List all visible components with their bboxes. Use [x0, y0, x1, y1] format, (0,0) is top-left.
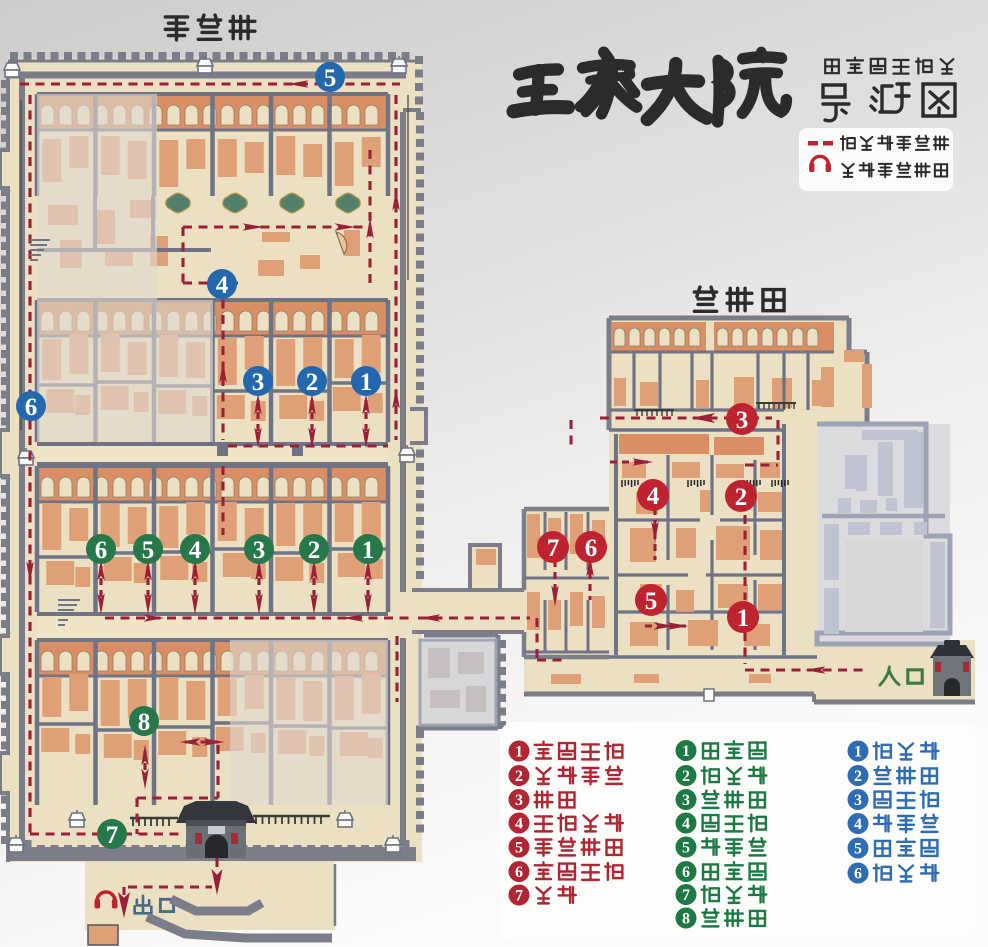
svg-text:6: 6: [95, 537, 108, 564]
svg-text:7: 7: [515, 888, 523, 905]
svg-text:1: 1: [360, 369, 373, 396]
svg-text:1: 1: [682, 743, 690, 760]
svg-text:8: 8: [682, 911, 690, 928]
svg-text:7: 7: [106, 822, 119, 849]
svg-text:3: 3: [252, 369, 265, 396]
svg-text:4: 4: [647, 483, 660, 510]
svg-text:5: 5: [142, 537, 155, 564]
svg-text:5: 5: [515, 840, 523, 857]
svg-text:5: 5: [682, 840, 690, 857]
svg-text:4: 4: [515, 816, 523, 833]
svg-text:1: 1: [737, 605, 750, 632]
svg-text:7: 7: [682, 887, 690, 904]
svg-text:2: 2: [735, 484, 748, 511]
svg-text:8: 8: [138, 709, 151, 736]
svg-text:2: 2: [306, 369, 319, 396]
svg-text:7: 7: [547, 535, 560, 562]
svg-text:1: 1: [362, 537, 375, 564]
svg-text:5: 5: [645, 588, 658, 615]
svg-text:6: 6: [515, 864, 523, 881]
svg-text:5: 5: [854, 841, 862, 858]
svg-text:1: 1: [515, 744, 523, 761]
svg-text:3: 3: [682, 792, 690, 809]
svg-text:4: 4: [854, 816, 862, 833]
svg-text:2: 2: [308, 537, 321, 564]
svg-text:2: 2: [682, 768, 690, 785]
svg-text:3: 3: [854, 792, 862, 809]
svg-text:2: 2: [515, 768, 523, 785]
svg-text:4: 4: [682, 816, 690, 833]
svg-text:2: 2: [854, 768, 862, 785]
svg-text:4: 4: [189, 537, 202, 564]
svg-text:4: 4: [216, 272, 229, 299]
svg-text:6: 6: [854, 866, 862, 883]
svg-text:6: 6: [25, 394, 38, 421]
svg-text:6: 6: [682, 864, 690, 881]
svg-text:3: 3: [736, 407, 749, 434]
svg-text:5: 5: [324, 65, 337, 92]
svg-text:3: 3: [515, 792, 523, 809]
svg-text:1: 1: [854, 744, 862, 761]
svg-text:6: 6: [585, 535, 598, 562]
svg-text:3: 3: [253, 537, 266, 564]
